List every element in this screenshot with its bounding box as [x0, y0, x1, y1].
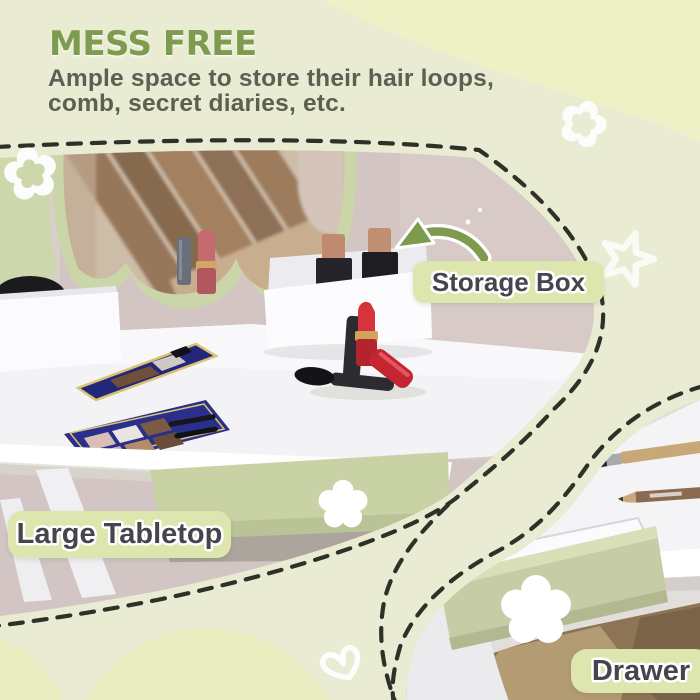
sparkle-icon [466, 220, 471, 225]
left-storage-box [0, 276, 122, 372]
callout-drawer-label: Drawer [592, 655, 690, 688]
subtitle-line: comb, secret diaries, etc. [48, 90, 346, 117]
callout-large-tabletop: Large Tabletop [8, 511, 231, 558]
callout-large-tabletop-label: Large Tabletop [17, 518, 223, 551]
subtitle-line: Ample space to store their hair loops, [48, 65, 494, 92]
heart-outline-icon [321, 646, 364, 685]
callout-storage-box: Storage Box [413, 261, 604, 303]
page-title: MESS FREE [49, 24, 257, 64]
sparkle-icon [478, 208, 482, 212]
callout-drawer: Drawer [571, 649, 700, 693]
page-subtitle: Ample space to store their hair loops, c… [48, 66, 518, 116]
star-outline-icon [596, 225, 660, 287]
product-feature-card: MESS FREE Ample space to store their hai… [0, 0, 700, 700]
callout-storage-box-label: Storage Box [432, 267, 585, 298]
